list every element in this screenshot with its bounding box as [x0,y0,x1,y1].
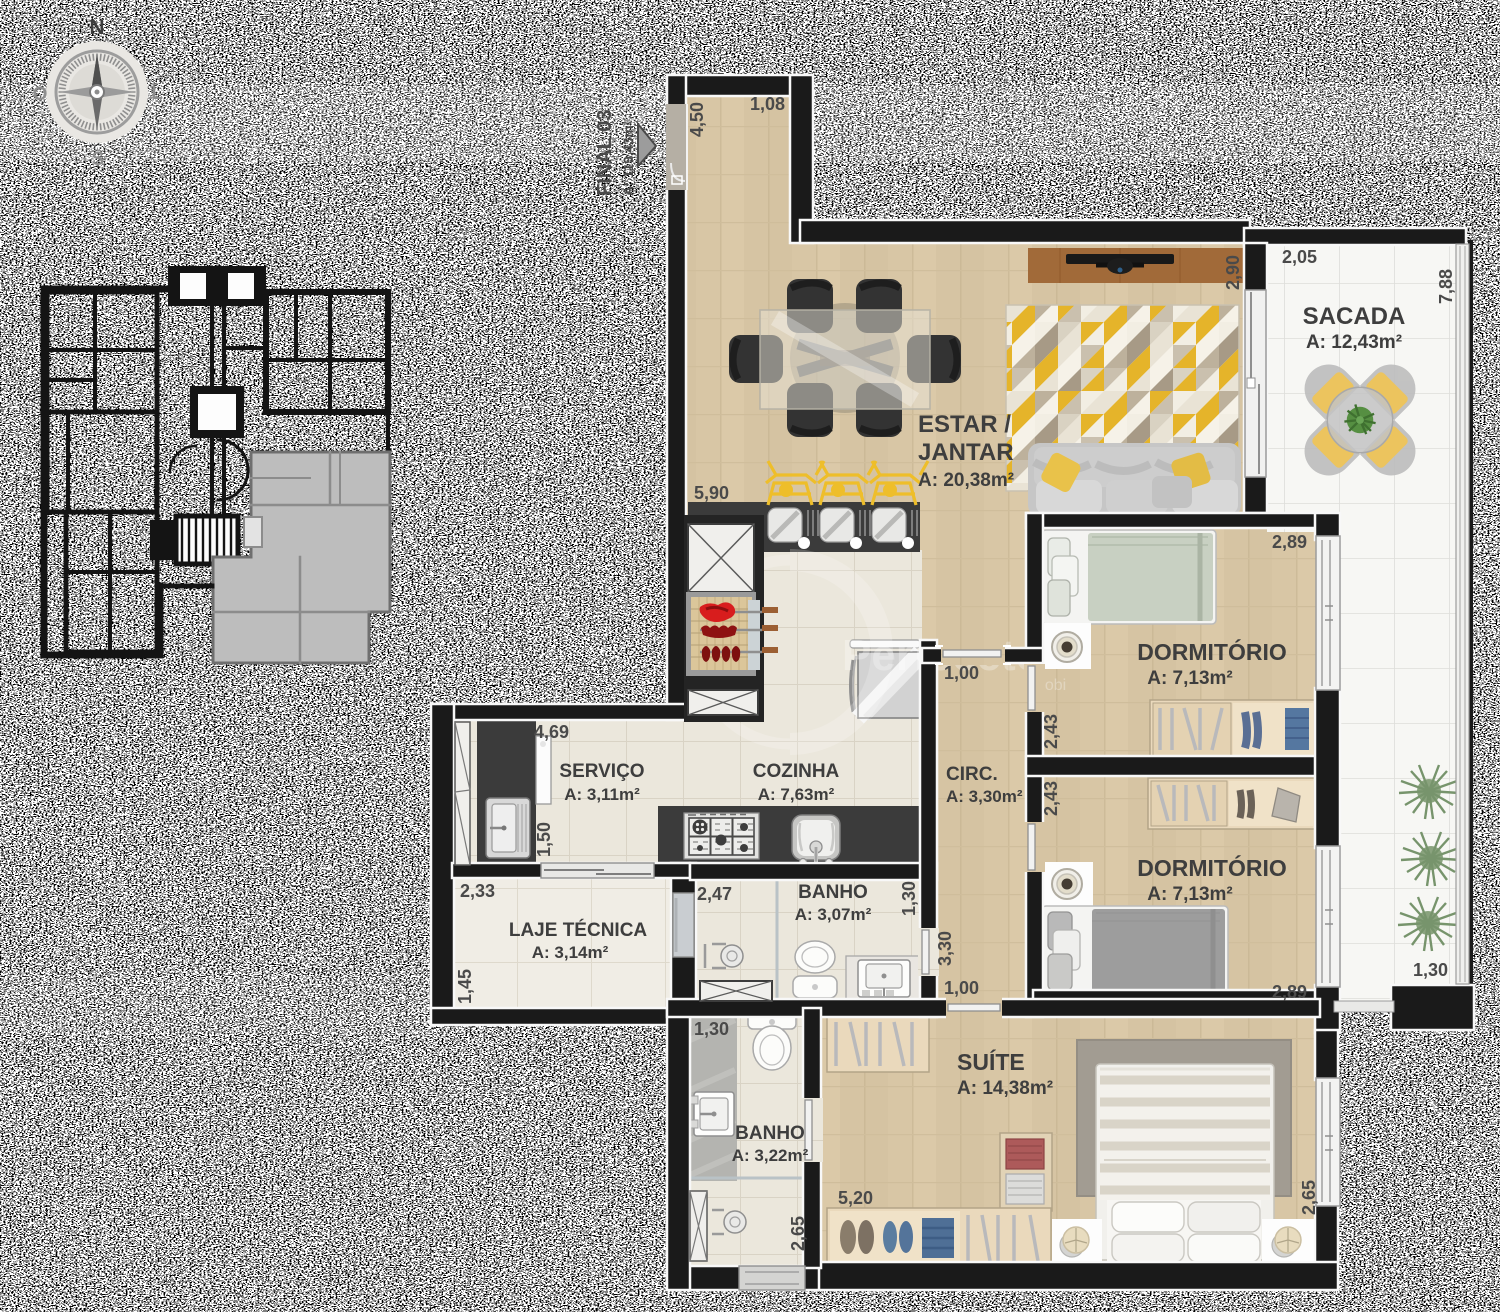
svg-text:2,65: 2,65 [788,1216,808,1251]
svg-text:SERVIÇO: SERVIÇO [559,761,644,782]
svg-text:A: 12,43m²: A: 12,43m² [1306,332,1402,353]
svg-text:A: 3,14m²: A: 3,14m² [532,943,609,962]
svg-text:N: N [89,16,104,39]
svg-text:4,50: 4,50 [687,102,707,137]
svg-text:1,00: 1,00 [944,663,979,683]
svg-text:SACADA: SACADA [1303,303,1406,330]
svg-text:S: S [92,149,105,170]
svg-text:2,47: 2,47 [697,884,732,904]
svg-text:1,00: 1,00 [944,978,979,998]
svg-text:2,05: 2,05 [1282,247,1317,267]
svg-text:1,08: 1,08 [750,94,785,114]
svg-text:BANHO: BANHO [735,1123,805,1144]
svg-text:1,45: 1,45 [455,969,475,1004]
svg-text:DORMITÓRIO: DORMITÓRIO [1137,854,1287,881]
svg-text:COZINHA: COZINHA [753,761,840,782]
svg-text:FINAL 03: FINAL 03 [594,110,616,196]
svg-text:DORMITÓRIO: DORMITÓRIO [1137,638,1287,665]
svg-text:1,30: 1,30 [899,881,919,916]
svg-text:ESTAR /: ESTAR / [918,411,1011,438]
svg-text:7,88: 7,88 [1436,269,1456,304]
svg-text:5,90: 5,90 [694,483,729,503]
svg-text:O: O [33,84,48,105]
svg-text:3,30: 3,30 [935,931,955,966]
svg-text:2,33: 2,33 [460,881,495,901]
svg-text:A: 20,38m²: A: 20,38m² [918,470,1014,491]
svg-text:2,90: 2,90 [1223,255,1243,290]
svg-text:1,30: 1,30 [694,1019,729,1039]
svg-text:SUÍTE: SUÍTE [957,1048,1025,1075]
svg-text:A: 3,22m²: A: 3,22m² [732,1146,809,1165]
svg-text:CIRC.: CIRC. [946,764,998,785]
svg-text:JANTAR: JANTAR [918,439,1014,466]
svg-text:A: 3,11m²: A: 3,11m² [564,785,640,804]
svg-text:A: 7,13m²: A: 7,13m² [1147,884,1233,905]
svg-text:2,65: 2,65 [1299,1180,1319,1215]
svg-text:2,89: 2,89 [1272,532,1307,552]
svg-text:A: 7,63m²: A: 7,63m² [758,785,835,804]
svg-text:A: 119,43m²: A: 119,43m² [621,120,636,196]
svg-text:A: 7,13m²: A: 7,13m² [1147,668,1233,689]
svg-text:A: 3,07m²: A: 3,07m² [795,905,872,924]
svg-text:2,89: 2,89 [1272,982,1307,1002]
svg-text:1,30: 1,30 [1413,960,1448,980]
svg-text:A: 14,38m²: A: 14,38m² [957,1078,1053,1099]
svg-text:BANHO: BANHO [798,882,868,903]
svg-text:4,69: 4,69 [534,722,569,742]
svg-text:1,50: 1,50 [534,822,554,857]
svg-text:A: 3,30m²: A: 3,30m² [946,787,1023,806]
svg-text:2,43: 2,43 [1041,714,1061,749]
svg-text:LAJE TÉCNICA: LAJE TÉCNICA [509,919,648,941]
svg-text:L: L [151,83,163,104]
svg-text:5,20: 5,20 [838,1188,873,1208]
svg-text:2,43: 2,43 [1041,781,1061,816]
